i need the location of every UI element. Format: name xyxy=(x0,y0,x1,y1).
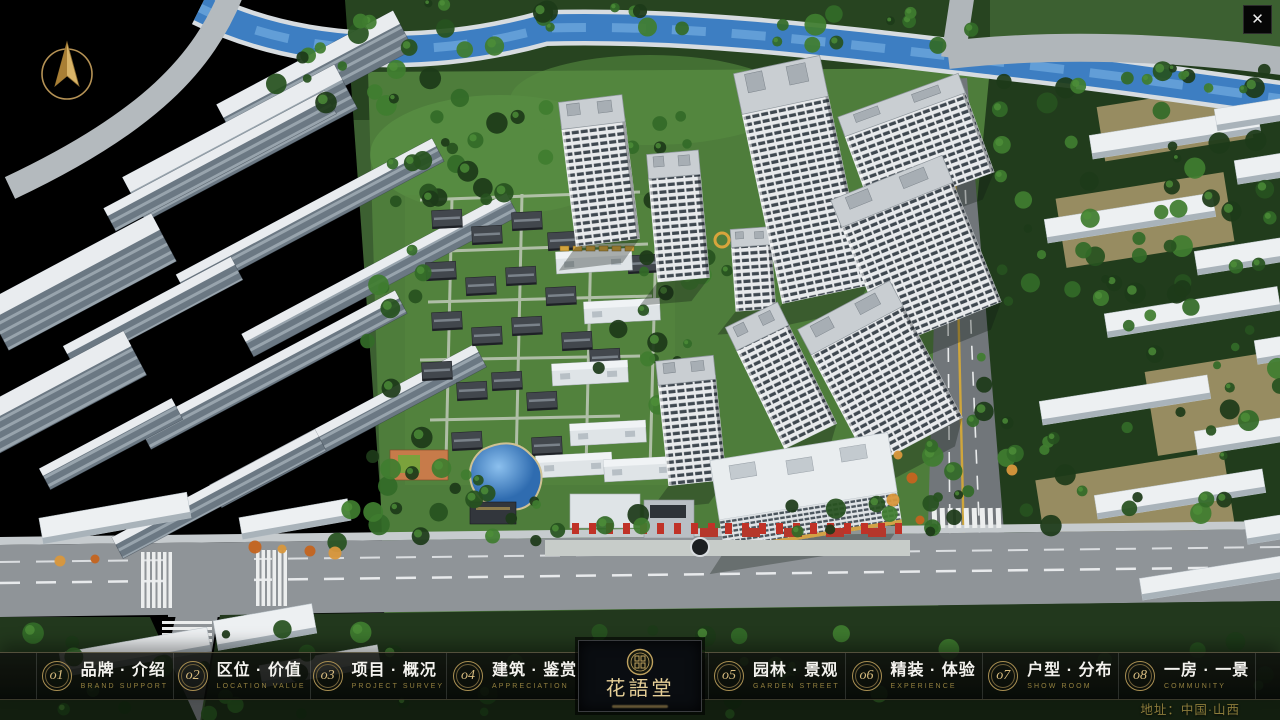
north-compass-icon xyxy=(34,34,100,108)
intersection xyxy=(168,543,254,617)
nav-number-badge: o3 xyxy=(313,661,343,691)
nav-number-badge: o1 xyxy=(42,661,72,691)
nav-label-zh: 区位 · 价值 xyxy=(217,662,302,680)
nav-label-zh: 园林 · 景观 xyxy=(753,662,838,680)
nav-number-badge: o6 xyxy=(852,661,882,691)
nav-label-en: COMMUNITY xyxy=(1164,683,1226,690)
nav-label-zh: 精装 · 体验 xyxy=(891,662,976,680)
nav-item-location-value[interactable]: o2 区位 · 价值 LOCATION VALUE xyxy=(173,653,310,699)
nav-number-badge: o5 xyxy=(714,661,744,691)
nav-label-en: BRAND SUPPORT xyxy=(81,683,168,690)
project-address: 地址：中国·山西 xyxy=(1140,699,1240,718)
nav-label-en: LOCATION VALUE xyxy=(217,683,306,690)
nav-item-architecture[interactable]: o4 建筑 · 鉴赏 APPRECIATION xyxy=(446,653,584,699)
nav-number-badge: o7 xyxy=(988,661,1018,691)
nav-label-zh: 品牌 · 介绍 xyxy=(81,662,166,680)
nav-number-badge: o8 xyxy=(1125,661,1155,691)
nav-label-zh: 项目 · 概况 xyxy=(352,662,437,680)
nav-label-zh: 一房 · 一景 xyxy=(1164,662,1249,680)
nav-label-zh: 建筑 · 鉴赏 xyxy=(492,662,577,680)
nav-label-en: APPRECIATION xyxy=(492,683,569,690)
nav-label-en: EXPERIENCE xyxy=(891,683,957,690)
nav-item-floorplans[interactable]: o7 户型 · 分布 SHOW ROOM xyxy=(982,653,1119,699)
close-icon[interactable]: ✕ xyxy=(1243,5,1272,34)
nav-label-en: SHOW ROOM xyxy=(1027,683,1091,690)
nav-item-garden-landscape[interactable]: o5 园林 · 景观 GARDEN STREET xyxy=(708,653,845,699)
brand-logo-panel[interactable]: 花語堂 xyxy=(578,640,702,712)
nav-item-decor-experience[interactable]: o6 精装 · 体验 EXPERIENCE xyxy=(845,653,982,699)
nav-number-badge: o2 xyxy=(178,661,208,691)
nav-label-en: PROJECT SURVEY xyxy=(352,683,445,690)
logo-subtitle-line xyxy=(612,705,668,708)
brand-logo-title: 花語堂 xyxy=(606,679,675,699)
nav-number-badge: o4 xyxy=(453,661,483,691)
northeast-road xyxy=(948,48,1280,62)
presentation-stage: ✕ o1 品牌 · 介绍 BRAND SUPPORT o2 区位 · 价值 LO… xyxy=(0,0,1280,720)
nav-item-brand-intro[interactable]: o1 品牌 · 介绍 BRAND SUPPORT xyxy=(36,653,173,699)
nav-label-en: GARDEN STREET xyxy=(753,683,840,690)
nav-item-room-view[interactable]: o8 一房 · 一景 COMMUNITY xyxy=(1118,653,1256,699)
brand-seal-icon xyxy=(626,648,654,676)
nav-item-project-survey[interactable]: o3 项目 · 概况 PROJECT SURVEY xyxy=(310,653,447,699)
aerial-masterplan-render xyxy=(0,0,1280,720)
nav-label-zh: 户型 · 分布 xyxy=(1027,662,1112,680)
